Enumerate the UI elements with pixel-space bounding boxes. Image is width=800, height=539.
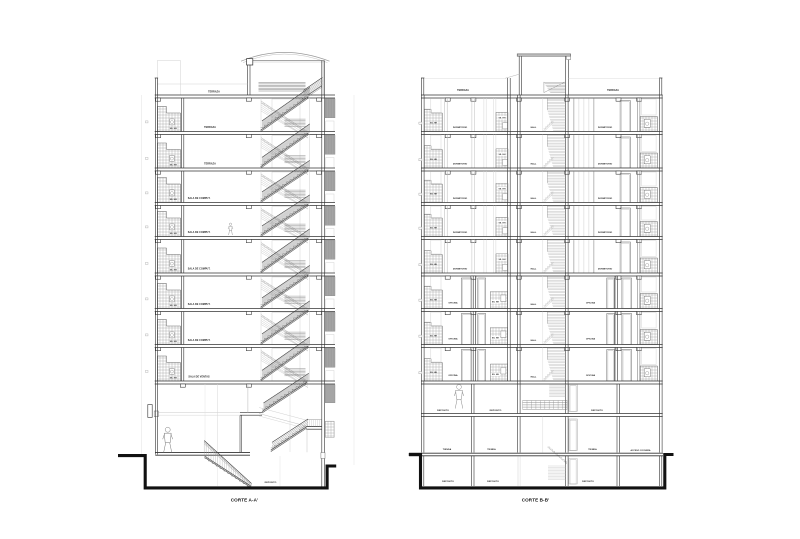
svg-text:DEPOSITO: DEPOSITO [591, 410, 603, 412]
svg-text:SS. HH: SS. HH [170, 341, 178, 343]
svg-text:TIENDA: TIENDA [588, 448, 597, 451]
svg-text:HALL: HALL [531, 339, 537, 342]
svg-text:DEPOSITO: DEPOSITO [437, 410, 449, 412]
svg-text:SALA DE VENTAS: SALA DE VENTAS [188, 375, 210, 378]
svg-text:TERRAZA: TERRAZA [204, 162, 216, 165]
svg-text:DORMITORIO: DORMITORIO [453, 127, 468, 129]
svg-text:DORMITORIO: DORMITORIO [598, 198, 613, 200]
svg-text:OFICINA: OFICINA [448, 374, 458, 377]
svg-text:SS. HH: SS. HH [170, 269, 178, 271]
svg-text:DEPOSITO: DEPOSITO [265, 482, 277, 484]
svg-text:SS. HH: SS. HH [170, 305, 178, 307]
svg-text:ACCESO COCHERA: ACCESO COCHERA [631, 449, 651, 452]
svg-text:SS. HH: SS. HH [170, 199, 178, 201]
svg-text:TERRAZA: TERRAZA [457, 89, 469, 92]
svg-text:SS. HH: SS. HH [499, 118, 506, 120]
svg-text:HALL: HALL [531, 376, 537, 379]
svg-text:DORMITORIO: DORMITORIO [453, 198, 468, 200]
svg-text:DEPOSITO: DEPOSITO [442, 481, 454, 483]
svg-text:SS. HH: SS. HH [492, 374, 499, 376]
svg-text:SS. HH: SS. HH [430, 227, 437, 229]
svg-text:DORMITORIO: DORMITORIO [453, 232, 468, 234]
svg-text:DORMITORIO: DORMITORIO [453, 164, 468, 166]
svg-text:SS. HH: SS. HH [430, 159, 437, 161]
svg-text:DORMITORIO: DORMITORIO [598, 269, 613, 271]
svg-text:SS. HH: SS. HH [430, 299, 437, 301]
svg-text:DORMITORIO: DORMITORIO [453, 269, 468, 271]
svg-text:SALA DE COMPUT.: SALA DE COMPUT. [188, 339, 211, 342]
svg-text:SS. HH: SS. HH [499, 259, 506, 261]
svg-text:CORTE B-B': CORTE B-B' [522, 498, 550, 503]
svg-text:TERRAZA: TERRAZA [607, 89, 619, 92]
svg-text:SS. HH: SS. HH [499, 223, 506, 225]
svg-text:OFICINA: OFICINA [448, 338, 458, 341]
svg-text:OFICINA: OFICINA [586, 338, 596, 341]
svg-text:SS. HH: SS. HH [430, 335, 437, 337]
svg-text:OFICINA: OFICINA [586, 374, 596, 377]
svg-text:HALL: HALL [531, 303, 537, 306]
svg-text:SS. HH: SS. HH [430, 372, 437, 374]
svg-text:SALA DE COMPUT.: SALA DE COMPUT. [188, 231, 211, 234]
svg-text:OFICINA: OFICINA [586, 302, 596, 305]
svg-text:TERRAZA: TERRAZA [208, 90, 220, 93]
svg-text:SS. HH: SS. HH [430, 122, 437, 124]
svg-text:SS. HH: SS. HH [430, 264, 437, 266]
svg-text:SALA DE COMPUT.: SALA DE COMPUT. [188, 267, 211, 270]
svg-text:TERRAZA: TERRAZA [204, 126, 216, 129]
svg-text:SS. HH: SS. HH [492, 338, 499, 340]
svg-text:DEPOSITO: DEPOSITO [582, 481, 594, 483]
svg-text:SALA DE COMPUT.: SALA DE COMPUT. [188, 303, 211, 306]
svg-text:HALL: HALL [531, 163, 537, 166]
svg-text:SS. HH: SS. HH [430, 193, 437, 195]
svg-text:DEPOSITO: DEPOSITO [490, 410, 502, 412]
svg-text:SS. HH: SS. HH [492, 302, 499, 304]
svg-text:SS. HH: SS. HH [499, 189, 506, 191]
svg-text:DORMITORIO: DORMITORIO [598, 127, 613, 129]
svg-text:SS. HH: SS. HH [499, 154, 506, 156]
svg-text:SALA DE COMPUT.: SALA DE COMPUT. [188, 197, 211, 200]
svg-text:SS. HH: SS. HH [170, 164, 178, 166]
svg-text:HALL: HALL [531, 126, 537, 129]
svg-text:SS. HH: SS. HH [170, 233, 178, 235]
svg-text:OFICINA: OFICINA [448, 302, 458, 305]
svg-text:HALL: HALL [531, 197, 537, 200]
svg-text:CORTE A-A': CORTE A-A' [231, 498, 258, 503]
svg-text:DORMITORIO: DORMITORIO [598, 164, 613, 166]
svg-text:SS. HH: SS. HH [170, 128, 178, 130]
svg-text:DORMITORIO: DORMITORIO [598, 232, 613, 234]
svg-text:TIENDA: TIENDA [443, 448, 452, 451]
svg-text:SS. HH: SS. HH [170, 377, 178, 379]
svg-text:TIENDA: TIENDA [487, 448, 496, 451]
svg-text:HALL: HALL [531, 231, 537, 234]
svg-text:HALL: HALL [531, 268, 537, 271]
svg-text:DEPOSITO: DEPOSITO [487, 481, 499, 483]
